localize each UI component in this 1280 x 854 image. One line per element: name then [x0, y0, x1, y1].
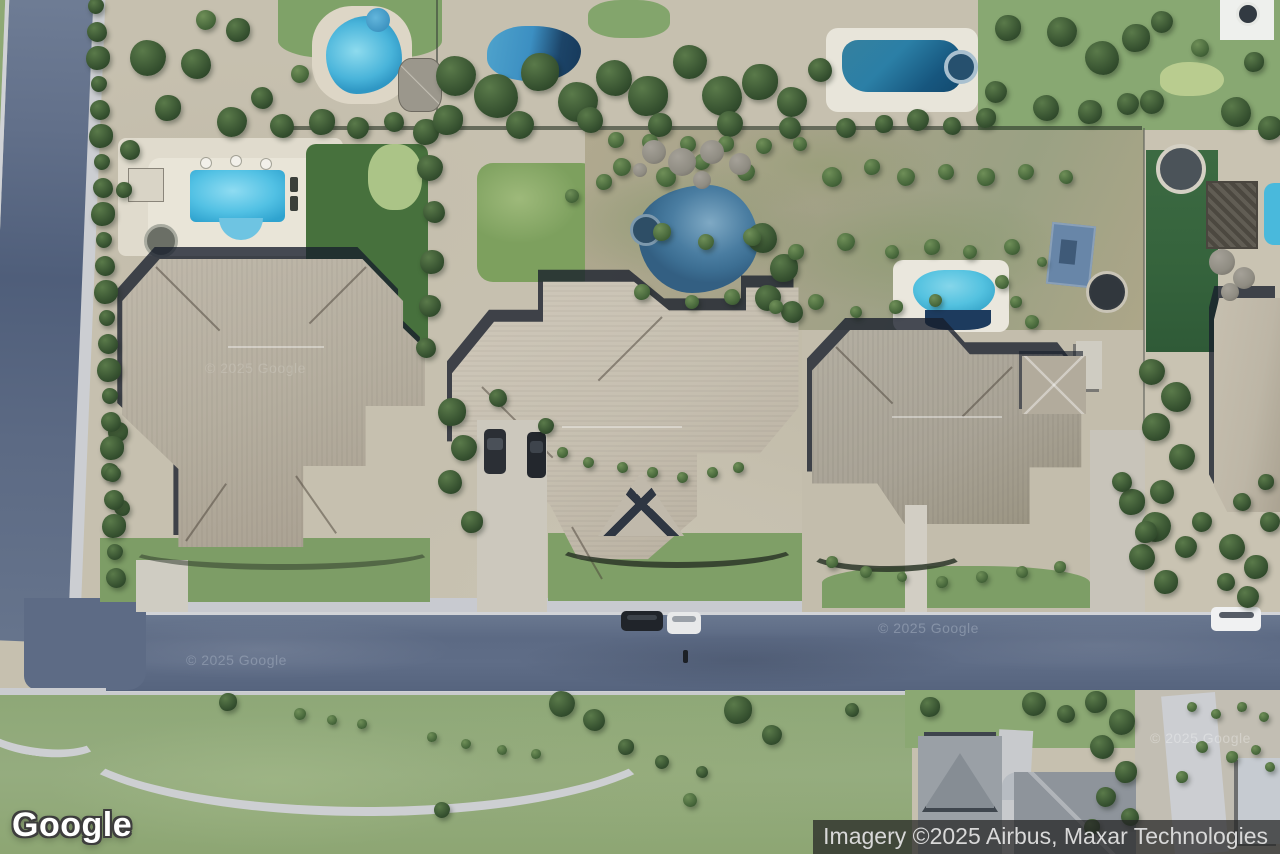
- tree: [1221, 97, 1251, 127]
- tree: [924, 239, 940, 255]
- tree: [845, 703, 859, 717]
- tree: [90, 100, 110, 120]
- tree: [270, 114, 294, 138]
- tree: [781, 301, 803, 323]
- tree: [920, 697, 940, 717]
- tree: [743, 228, 761, 246]
- tree: [1057, 705, 1075, 723]
- spa-top-left: [366, 8, 390, 32]
- tree: [1258, 474, 1274, 490]
- tree: [155, 95, 181, 121]
- curved-walking-path: [58, 648, 676, 816]
- tree: [822, 167, 842, 187]
- tree: [474, 74, 518, 118]
- rock-feature: [642, 140, 666, 164]
- rock-feature: [729, 153, 751, 175]
- tree: [87, 22, 107, 42]
- tree: [1211, 709, 1221, 719]
- tree: [97, 358, 121, 382]
- tree: [1219, 534, 1245, 560]
- rock-feature: [1209, 249, 1235, 275]
- tree: [384, 112, 404, 132]
- tree: [596, 60, 632, 96]
- tree: [86, 46, 110, 70]
- tree: [628, 76, 668, 116]
- rect-pool-left-property: [190, 170, 285, 222]
- garden-hedge: [552, 522, 802, 568]
- tree: [116, 182, 132, 198]
- tree: [1033, 95, 1059, 121]
- tree: [1119, 489, 1145, 515]
- tree: [327, 715, 337, 725]
- tree: [596, 174, 612, 190]
- tree: [836, 118, 856, 138]
- backyard-lawn-middle: [477, 163, 597, 282]
- pedestrian: [683, 650, 688, 663]
- tree: [100, 436, 124, 460]
- top-center-lawn: [588, 0, 670, 38]
- sunken-trampoline: [1156, 144, 1206, 194]
- putting-green-left: [368, 144, 422, 210]
- tree: [438, 398, 466, 426]
- tree: [1054, 561, 1066, 573]
- tree: [427, 732, 437, 742]
- driveway-right: [1090, 430, 1145, 612]
- house-roof: [116, 250, 428, 550]
- spa-top-right-pool: [944, 50, 978, 84]
- tree: [634, 284, 650, 300]
- tree: [617, 462, 628, 473]
- tree: [943, 117, 961, 135]
- tree: [94, 154, 110, 170]
- tree: [875, 115, 893, 133]
- tree: [1090, 735, 1114, 759]
- tree: [1115, 761, 1137, 783]
- spa-top-right: [1236, 2, 1260, 26]
- tree: [583, 457, 594, 468]
- tree: [416, 338, 436, 358]
- tree: [1142, 413, 1170, 441]
- satellite-map-canvas[interactable]: © 2025 Google © 2025 Google © 2025 Googl…: [0, 0, 1280, 854]
- tree: [120, 140, 140, 160]
- tree: [995, 275, 1009, 289]
- tree: [1135, 521, 1157, 543]
- tree: [1217, 573, 1235, 591]
- tree: [677, 472, 688, 483]
- tree: [1085, 41, 1119, 75]
- tree: [101, 412, 121, 432]
- tree: [1244, 52, 1264, 72]
- tree: [976, 108, 996, 128]
- tree: [608, 132, 624, 148]
- trampoline: [1086, 271, 1128, 313]
- tree: [808, 58, 832, 82]
- tree: [977, 168, 995, 186]
- tree: [995, 15, 1021, 41]
- tree: [583, 709, 605, 731]
- tree: [95, 256, 115, 276]
- tree: [93, 178, 113, 198]
- rock-feature: [668, 148, 696, 176]
- white-car-on-road: [1211, 607, 1261, 631]
- road-intersection: [24, 598, 146, 690]
- tree: [826, 556, 838, 568]
- car-on-road: [621, 611, 663, 631]
- playground-equipment: [1059, 239, 1077, 265]
- garden-bed: [126, 528, 438, 570]
- tree: [89, 124, 113, 148]
- putting-green: [1160, 62, 1224, 96]
- tree: [557, 447, 568, 458]
- lounge-chair: [290, 196, 298, 211]
- garage-pyramid-roof: [1022, 356, 1086, 414]
- google-logo[interactable]: Google: [12, 806, 132, 845]
- tree: [788, 244, 804, 260]
- tree: [219, 693, 237, 711]
- tree: [1004, 239, 1020, 255]
- tree: [885, 245, 899, 259]
- tree: [850, 306, 862, 318]
- tree: [1258, 116, 1280, 140]
- tree: [489, 389, 507, 407]
- truck-on-road: [667, 612, 701, 634]
- tree: [105, 466, 121, 482]
- tree: [1150, 480, 1174, 504]
- tree: [433, 105, 463, 135]
- tree: [181, 49, 211, 79]
- tree: [1237, 702, 1247, 712]
- tree: [779, 117, 801, 139]
- tree: [696, 766, 708, 778]
- pergola: [1206, 181, 1258, 249]
- tree: [889, 300, 903, 314]
- tree: [104, 490, 124, 510]
- rock-feature: [633, 163, 647, 177]
- tree: [226, 18, 250, 42]
- gazebo: [398, 58, 442, 112]
- tree: [653, 223, 671, 241]
- tree: [461, 511, 483, 533]
- tree: [724, 289, 740, 305]
- tree: [1226, 751, 1238, 763]
- umbrella: [261, 159, 271, 169]
- tree: [707, 467, 718, 478]
- tree: [733, 462, 744, 473]
- tree: [497, 745, 507, 755]
- tree: [521, 53, 559, 91]
- outdoor-kitchen: [128, 168, 164, 202]
- tree: [420, 250, 444, 274]
- imagery-attribution: Imagery ©2025 Airbus, Maxar Technologies: [813, 820, 1280, 854]
- tree: [1191, 39, 1209, 57]
- house-left: [116, 250, 428, 550]
- tree: [577, 107, 603, 133]
- umbrella: [231, 156, 241, 166]
- tree: [724, 696, 752, 724]
- property-wall: [280, 126, 1142, 130]
- tree: [1154, 570, 1178, 594]
- tree: [793, 137, 807, 151]
- tree: [251, 87, 273, 109]
- tree: [1016, 566, 1028, 578]
- tree: [1176, 771, 1188, 783]
- tree: [1233, 493, 1251, 511]
- tree: [438, 470, 462, 494]
- tree: [647, 467, 658, 478]
- pool-far-right-edge: [1264, 183, 1280, 245]
- umbrella: [201, 158, 211, 168]
- tree: [423, 201, 445, 223]
- rock-feature: [693, 171, 711, 189]
- tree: [1078, 100, 1102, 124]
- google-watermark: © 2025 Google: [186, 652, 287, 668]
- tree: [1085, 691, 1107, 713]
- parked-car: [527, 432, 546, 478]
- google-watermark: © 2025 Google: [878, 620, 979, 636]
- google-watermark: © 2025 Google: [1150, 730, 1251, 746]
- rock-feature: [1221, 283, 1239, 301]
- google-watermark: © 2025 Google: [205, 360, 306, 376]
- lounge-chair: [290, 177, 298, 192]
- tree: [938, 164, 954, 180]
- driveway-left: [136, 560, 188, 612]
- tree: [936, 576, 948, 588]
- tree: [98, 334, 118, 354]
- tree: [897, 572, 907, 582]
- tree: [106, 568, 126, 588]
- parked-car: [484, 429, 506, 474]
- tree: [618, 739, 634, 755]
- tree: [1265, 762, 1275, 772]
- tree: [531, 749, 541, 759]
- tree: [1059, 170, 1073, 184]
- tree: [1010, 296, 1022, 308]
- tree: [929, 294, 942, 307]
- tree: [1122, 24, 1150, 52]
- tree: [1129, 544, 1155, 570]
- tree: [683, 793, 697, 807]
- tree: [702, 76, 742, 116]
- rock-feature: [700, 140, 724, 164]
- tree: [769, 300, 783, 314]
- tree: [357, 719, 367, 729]
- tree: [309, 109, 335, 135]
- tree: [1037, 257, 1047, 267]
- tree: [1112, 472, 1132, 492]
- tree: [864, 159, 880, 175]
- tree: [1161, 382, 1191, 412]
- tree: [1244, 555, 1268, 579]
- tree: [742, 64, 778, 100]
